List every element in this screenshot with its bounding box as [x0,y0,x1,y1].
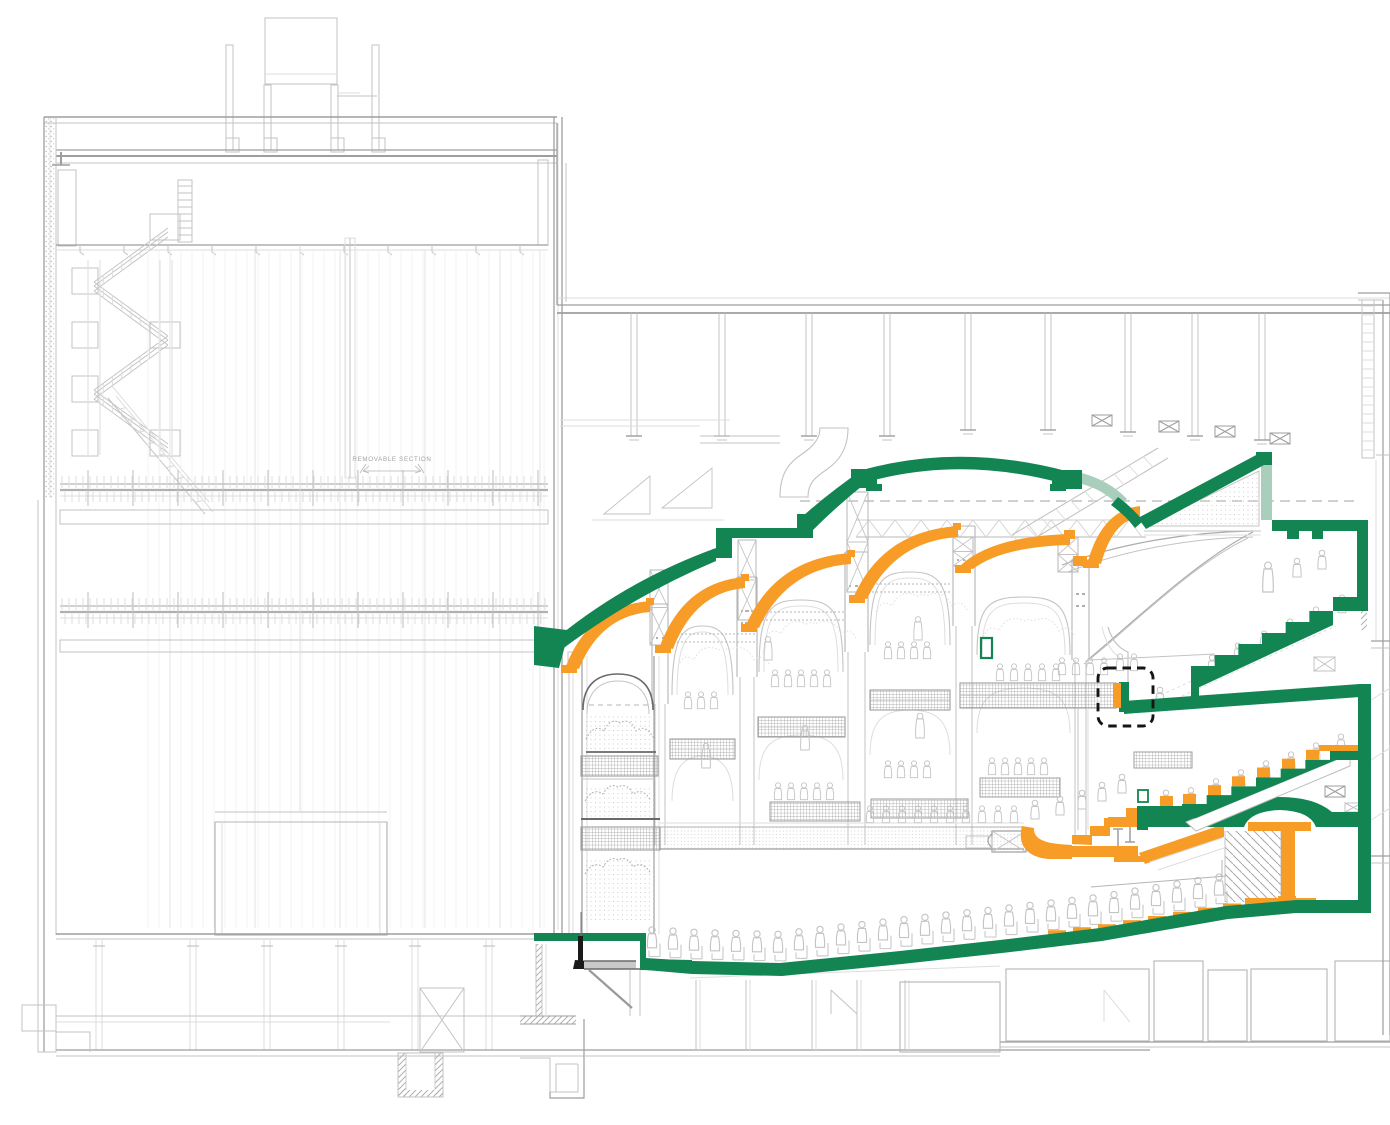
svg-text:REMOVABLE SECTION: REMOVABLE SECTION [352,456,431,463]
